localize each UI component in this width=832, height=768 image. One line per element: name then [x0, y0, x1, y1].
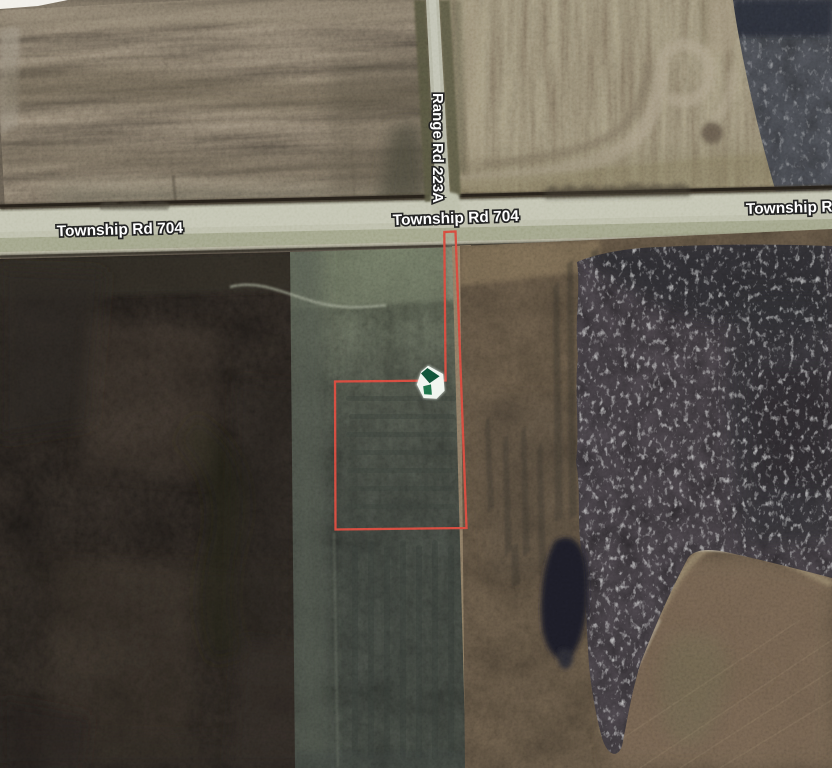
svg-text:Township Rd: Township Rd — [746, 198, 832, 218]
svg-text:Township Rd 704: Township Rd 704 — [57, 220, 184, 241]
svg-text:Range Rd 223A: Range Rd 223A — [429, 93, 446, 203]
